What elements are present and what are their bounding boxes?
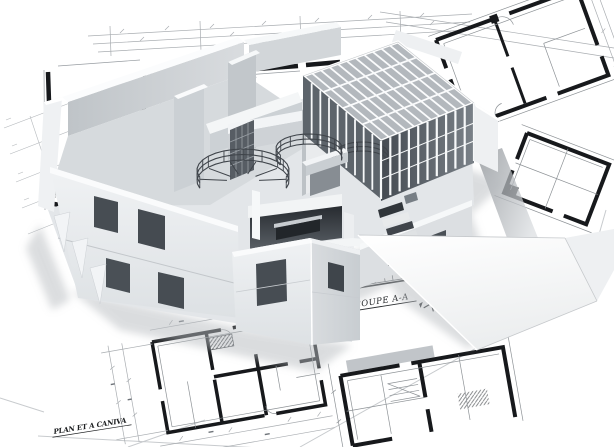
plan-title: PLAN ET A CANIVA: [51, 415, 132, 437]
window-opening: [256, 259, 287, 306]
window-opening: [106, 258, 130, 293]
window-opening: [158, 272, 184, 309]
window-opening: [94, 196, 118, 233]
architectural-render-image: COUPE A-A: [0, 0, 614, 447]
window-opening: [328, 262, 344, 292]
plan-lower-middle: [326, 332, 523, 447]
dimension-strings-top: [88, 11, 614, 58]
atrium-right-wall: [474, 103, 498, 172]
window-opening: [138, 209, 165, 250]
plan-label: PLAN ET A CANIVA: [52, 415, 128, 436]
render-canvas: COUPE A-A: [0, 0, 614, 447]
corner-block: [232, 238, 360, 345]
